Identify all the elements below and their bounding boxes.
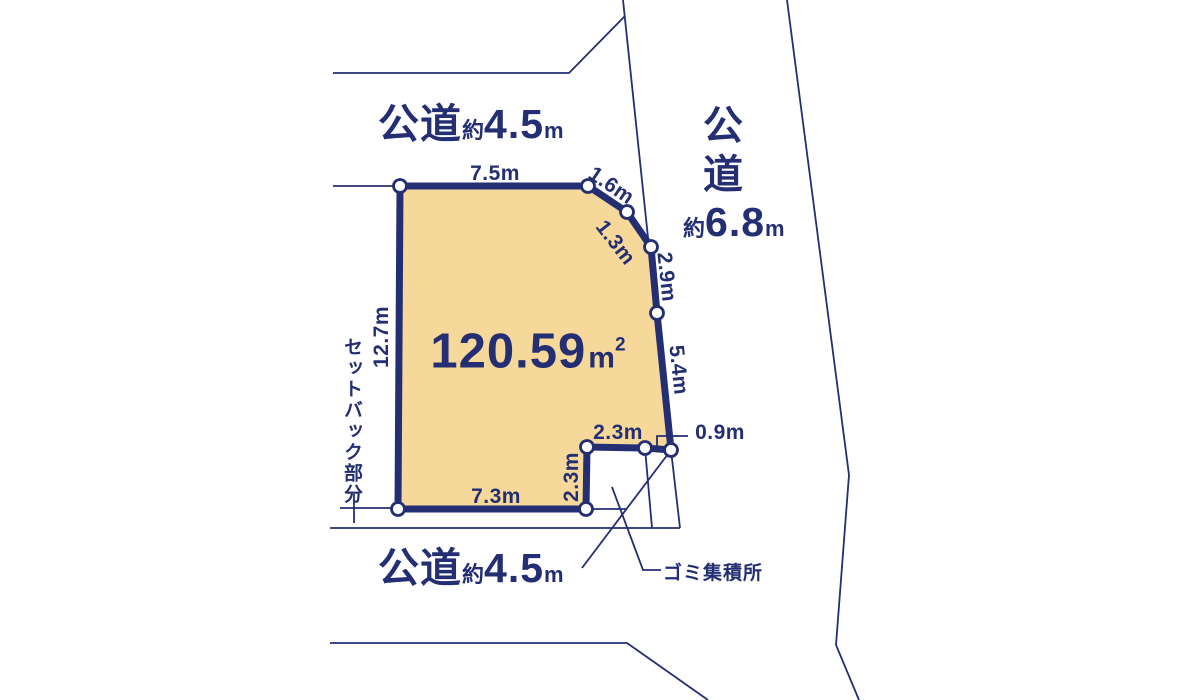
road-name-char: 道: [700, 155, 746, 195]
land-plot-diagram: 公道約4.5m 公道約4.5m 公 道 約6.8m 120.59m2 7.5m …: [0, 0, 1200, 700]
dim-notch-top: 2.3m: [593, 421, 643, 445]
vertex-dot: [651, 307, 664, 320]
road-width: 4.5: [484, 101, 544, 147]
dim-top: 7.5m: [470, 162, 520, 186]
area-value: 120.59: [430, 325, 586, 379]
road-name: 公道: [378, 101, 462, 147]
dim-left: 12.7m: [370, 306, 394, 368]
vertex-dot: [580, 503, 593, 516]
road-unit: m: [765, 216, 785, 241]
road-label-right-name: 公 道: [700, 106, 746, 204]
road-width: 4.5: [484, 545, 544, 591]
garbage-label: ゴミ集積所: [663, 558, 763, 585]
vertex-dot: [394, 180, 407, 193]
road-approx: 約: [462, 562, 484, 587]
road-edge-right-outer: [787, 0, 859, 700]
road-edge-top-left: [333, 16, 625, 73]
vertex-dot: [645, 241, 658, 254]
road-edge-bottom-far: [330, 643, 708, 700]
dim-corner: 0.9m: [695, 421, 745, 445]
road-approx: 約: [683, 216, 705, 241]
road-label-bottom: 公道約4.5m: [378, 548, 564, 589]
dim-notch-left: 2.3m: [560, 452, 584, 502]
road-label-right-width: 約6.8m: [683, 202, 785, 243]
road-width: 6.8: [705, 199, 765, 245]
road-approx: 約: [462, 118, 484, 143]
garbage-strip-right: [671, 450, 680, 528]
road-unit: m: [544, 562, 564, 587]
garbage-strip-left: [645, 448, 652, 528]
road-name: 公道: [378, 545, 462, 591]
vertex-dot: [392, 503, 405, 516]
dim-right-lower: 5.4m: [663, 344, 692, 396]
plot-area-label: 120.59m2: [430, 328, 625, 377]
area-superscript: 2: [615, 335, 626, 356]
road-label-top: 公道約4.5m: [378, 104, 564, 145]
setback-label: セットバック部分: [342, 337, 361, 505]
area-unit: m: [588, 342, 615, 375]
dim-right-upper: 2.9m: [651, 251, 680, 303]
road-name-char: 公: [700, 106, 746, 146]
dim-bottom: 7.3m: [471, 485, 521, 509]
vertex-dot: [665, 444, 678, 457]
road-unit: m: [544, 118, 564, 143]
